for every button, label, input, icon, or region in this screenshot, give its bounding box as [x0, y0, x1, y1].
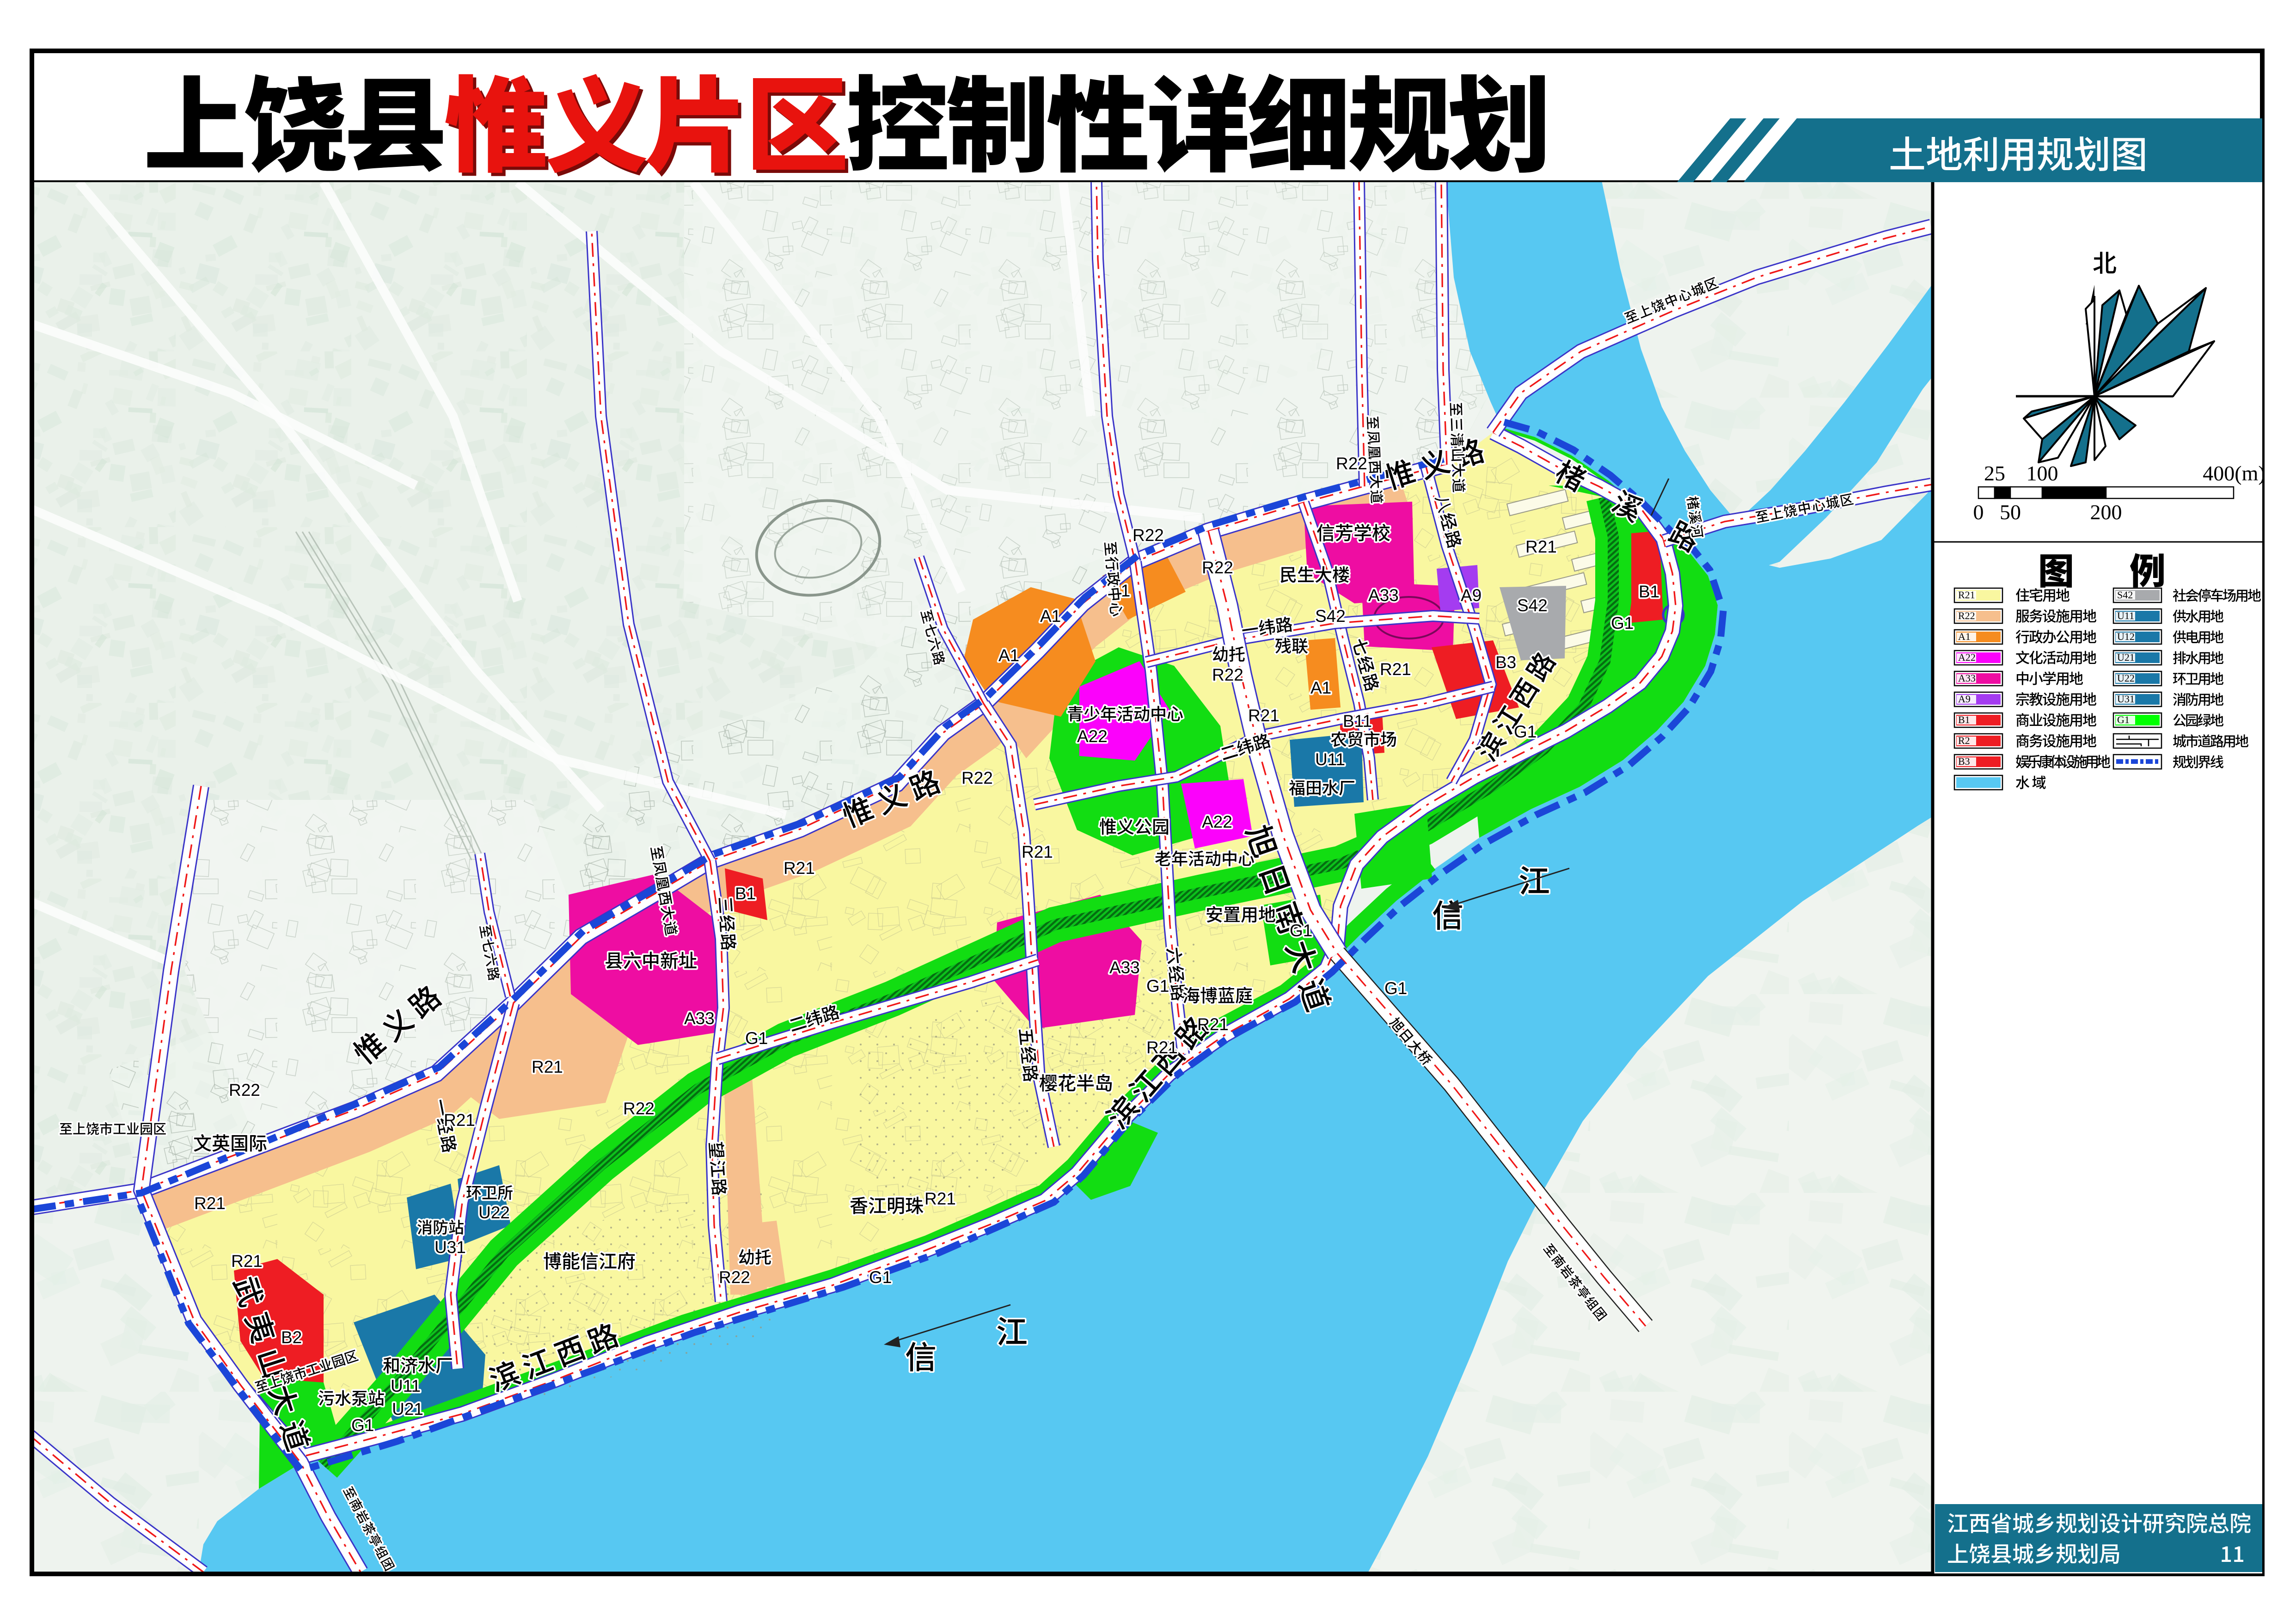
svg-text:信: 信	[1432, 891, 1463, 936]
svg-text:供电用地: 供电用地	[2173, 626, 2224, 646]
svg-text:A1: A1	[1040, 607, 1061, 626]
svg-text:社会停车场用地: 社会停车场用地	[2173, 584, 2261, 605]
svg-text:服务设施用地: 服务设施用地	[2015, 605, 2097, 626]
svg-text:商业设施用地: 商业设施用地	[2015, 709, 2097, 730]
svg-text:A1: A1	[1310, 678, 1331, 697]
svg-text:R21: R21	[784, 859, 815, 878]
svg-text:博能信江府: 博能信江府	[543, 1247, 636, 1273]
svg-text:惟义公园: 惟义公园	[1099, 813, 1169, 838]
svg-text:环卫所: 环卫所	[466, 1180, 513, 1203]
svg-text:R21: R21	[1525, 537, 1557, 556]
svg-text:U11: U11	[2117, 610, 2134, 621]
svg-text:规划界线: 规划界线	[2173, 751, 2224, 771]
svg-text:R21: R21	[1958, 589, 1975, 601]
svg-text:上饶县城乡规划局: 上饶县城乡规划局	[1947, 1536, 2121, 1568]
svg-text:A22: A22	[1202, 812, 1232, 831]
svg-text:海博蓝庭: 海博蓝庭	[1182, 982, 1253, 1007]
svg-text:娱乐康体设施用地: 娱乐康体设施用地	[2015, 750, 2111, 771]
svg-text:水 域: 水 域	[2015, 771, 2046, 792]
svg-text:A9: A9	[1461, 586, 1482, 605]
svg-text:例: 例	[2130, 543, 2166, 595]
svg-text:污水泵站: 污水泵站	[318, 1385, 385, 1409]
svg-text:江: 江	[996, 1307, 1028, 1352]
svg-text:100: 100	[2027, 461, 2058, 485]
svg-text:R21: R21	[1197, 1015, 1229, 1034]
svg-text:和济水厂: 和济水厂	[383, 1352, 453, 1377]
svg-text:青少年活动中心: 青少年活动中心	[1067, 701, 1183, 725]
svg-text:至上饶市工业园区: 至上饶市工业园区	[59, 1118, 166, 1138]
svg-text:S42: S42	[1517, 596, 1548, 615]
svg-text:文英国际: 文英国际	[193, 1129, 267, 1155]
svg-text:U31: U31	[435, 1238, 466, 1257]
svg-text:U31: U31	[2117, 693, 2135, 705]
svg-text:供水用地: 供水用地	[2173, 605, 2224, 626]
svg-text:信芳学校: 信芳学校	[1316, 518, 1390, 545]
svg-text:R22: R22	[1212, 665, 1243, 684]
svg-text:B1: B1	[735, 884, 756, 903]
svg-text:B2: B2	[281, 1328, 302, 1347]
svg-text:中小学用地: 中小学用地	[2015, 667, 2083, 688]
svg-text:B1: B1	[1958, 714, 1970, 725]
svg-text:A1: A1	[998, 646, 1019, 665]
svg-text:县六中新址: 县六中新址	[605, 946, 697, 973]
svg-text:公园绿地: 公园绿地	[2173, 709, 2224, 730]
svg-text:福田水厂: 福田水厂	[1289, 775, 1355, 799]
svg-text:宗教设施用地: 宗教设施用地	[2015, 688, 2097, 709]
svg-text:城市道路用地: 城市道路用地	[2173, 730, 2249, 750]
svg-text:消防站: 消防站	[417, 1215, 464, 1238]
svg-text:R22: R22	[719, 1268, 750, 1287]
svg-text:S42: S42	[2117, 589, 2133, 601]
svg-text:0: 0	[1973, 500, 1984, 524]
svg-text:上饶县惟义片区控制性详细规划: 上饶县惟义片区控制性详细规划	[143, 43, 1551, 193]
svg-text:A1: A1	[1958, 631, 1971, 642]
svg-text:400(m): 400(m)	[2203, 461, 2265, 485]
svg-text:R2: R2	[1958, 735, 1970, 746]
svg-text:R21: R21	[1146, 1038, 1178, 1057]
svg-text:R22: R22	[623, 1099, 655, 1118]
svg-text:G1: G1	[1146, 977, 1169, 995]
svg-text:R21: R21	[1022, 842, 1053, 861]
svg-text:A22: A22	[1077, 727, 1108, 746]
svg-text:R22: R22	[1958, 610, 1975, 621]
svg-text:B11: B11	[1343, 712, 1372, 731]
svg-text:望江路: 望江路	[704, 1141, 733, 1198]
svg-text:U11: U11	[1315, 750, 1345, 769]
svg-text:北: 北	[2093, 244, 2117, 279]
svg-text:R21: R21	[1248, 706, 1280, 725]
svg-text:R22: R22	[1336, 454, 1367, 473]
svg-text:R21: R21	[925, 1189, 956, 1208]
svg-text:香江明珠: 香江明珠	[850, 1191, 924, 1218]
svg-text:A33: A33	[1368, 586, 1399, 605]
svg-text:U22: U22	[2117, 672, 2135, 684]
svg-text:至三清山大道: 至三清山大道	[1446, 402, 1470, 494]
svg-text:R21: R21	[532, 1057, 563, 1076]
svg-text:G1: G1	[351, 1416, 374, 1435]
svg-text:环卫用地: 环卫用地	[2173, 668, 2224, 688]
svg-text:A9: A9	[1958, 693, 1971, 705]
svg-text:U21: U21	[2117, 651, 2135, 663]
svg-text:R21: R21	[1380, 660, 1411, 679]
svg-text:R22: R22	[1202, 558, 1233, 577]
svg-text:U21: U21	[392, 1400, 423, 1419]
svg-text:住宅用地: 住宅用地	[2015, 584, 2070, 605]
svg-text:文化活动用地: 文化活动用地	[2015, 646, 2097, 667]
svg-text:B3: B3	[1958, 756, 1970, 767]
svg-text:25: 25	[1984, 461, 2005, 485]
svg-text:行政办公用地: 行政办公用地	[2015, 626, 2097, 646]
svg-text:土地利用规划图: 土地利用规划图	[1889, 125, 2148, 179]
svg-text:A33: A33	[1109, 958, 1140, 977]
svg-text:B3: B3	[1495, 653, 1516, 672]
svg-text:G1: G1	[2117, 714, 2130, 725]
svg-text:幼托: 幼托	[738, 1244, 771, 1268]
svg-text:R21: R21	[231, 1252, 263, 1271]
svg-text:R21: R21	[444, 1111, 475, 1130]
svg-text:G1: G1	[1384, 979, 1407, 998]
svg-text:R22: R22	[229, 1081, 260, 1100]
svg-text:樱花半岛: 樱花半岛	[1039, 1069, 1113, 1095]
svg-text:11: 11	[2220, 1536, 2245, 1568]
svg-text:U22: U22	[478, 1203, 510, 1222]
svg-text:R22: R22	[961, 768, 993, 787]
svg-text:U11: U11	[391, 1376, 421, 1395]
svg-text:信: 信	[905, 1332, 937, 1378]
svg-text:江西省城乡规划设计研究院总院: 江西省城乡规划设计研究院总院	[1947, 1506, 2251, 1538]
svg-text:50: 50	[2000, 500, 2021, 524]
svg-text:安置用地: 安置用地	[1206, 901, 1276, 926]
svg-text:B1: B1	[1639, 582, 1659, 601]
svg-text:幼托: 幼托	[1212, 641, 1245, 665]
svg-text:三经路: 三经路	[714, 896, 742, 952]
svg-text:200: 200	[2090, 500, 2122, 524]
svg-text:R21: R21	[194, 1194, 226, 1213]
svg-text:排水用地: 排水用地	[2173, 647, 2224, 667]
svg-text:G1: G1	[869, 1268, 892, 1287]
svg-text:消防用地: 消防用地	[2173, 688, 2224, 709]
svg-text:G1: G1	[1514, 722, 1537, 741]
svg-text:A22: A22	[1958, 651, 1976, 663]
svg-text:商务设施用地: 商务设施用地	[2015, 730, 2097, 750]
svg-text:G1: G1	[745, 1029, 768, 1048]
svg-text:老年活动中心: 老年活动中心	[1155, 846, 1255, 870]
svg-text:残联: 残联	[1275, 633, 1308, 657]
svg-text:R22: R22	[1133, 526, 1164, 545]
svg-text:民生大楼: 民生大楼	[1280, 561, 1350, 586]
svg-text:A33: A33	[1958, 672, 1976, 684]
svg-text:G1: G1	[1611, 614, 1634, 633]
svg-text:S42: S42	[1315, 607, 1346, 626]
svg-text:G1: G1	[1290, 921, 1312, 940]
svg-text:U12: U12	[2117, 631, 2135, 642]
svg-text:A33: A33	[684, 1009, 715, 1028]
